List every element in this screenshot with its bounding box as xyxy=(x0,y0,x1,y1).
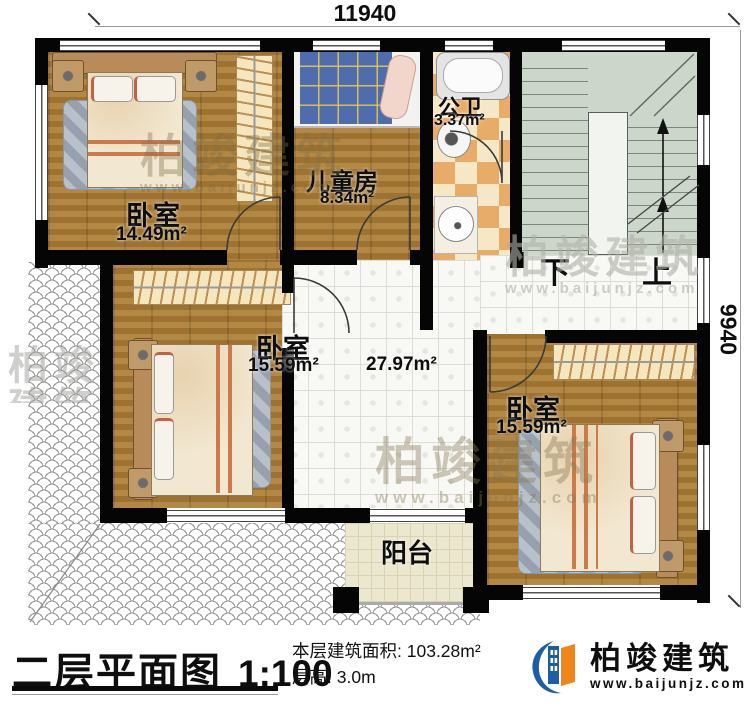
stairs-down-label: 下 xyxy=(540,248,570,292)
window xyxy=(562,40,665,51)
window xyxy=(697,445,710,530)
dimension-tick xyxy=(728,13,741,26)
title-underline-thin xyxy=(12,694,278,695)
area-label-bedroom-bottom-right: 15.59m² xyxy=(496,417,567,439)
floor-height-label: 层高: xyxy=(292,667,332,687)
window xyxy=(60,40,260,51)
area-label-bedroom-mid-left: 15.59m² xyxy=(248,355,319,377)
bed-blanket-stripes xyxy=(216,345,240,493)
bathtub-basin xyxy=(443,58,503,93)
floor-hall xyxy=(282,260,480,508)
pillow xyxy=(134,76,176,102)
wardrobe xyxy=(133,270,291,305)
stair-flight-right xyxy=(628,115,697,255)
floor-height-value: 3.0m xyxy=(337,667,376,687)
sink xyxy=(438,206,474,242)
wall-segment xyxy=(285,508,370,523)
nightstand xyxy=(52,60,84,92)
wall-segment xyxy=(35,250,227,265)
pillow xyxy=(154,418,174,480)
balcony-pier xyxy=(463,587,489,613)
wall-segment xyxy=(420,38,433,330)
brand-name: 柏竣建筑 xyxy=(590,643,747,676)
wall-segment xyxy=(282,265,294,293)
dimension-height-label: 9940 xyxy=(715,292,742,368)
wardrobe xyxy=(553,344,695,380)
wall-segment xyxy=(282,38,294,250)
wardrobe xyxy=(236,55,273,202)
room-label-balcony: 阳台 xyxy=(381,533,433,570)
wall-segment xyxy=(473,330,487,585)
stair-flight-left xyxy=(522,56,588,255)
floor-info: 本层建筑面积: 103.28m² 层高: 3.0m xyxy=(292,638,481,691)
wall-segment xyxy=(100,250,113,508)
brand-text: 柏竣建筑 www.baijunjz.com xyxy=(590,643,747,691)
brand-logo: 柏竣建筑 www.baijunjz.com xyxy=(528,638,747,696)
wall-segment xyxy=(280,250,357,265)
window xyxy=(523,587,660,599)
bed-blanket-stripes xyxy=(572,425,598,569)
stair-void xyxy=(588,112,628,255)
brand-logo-icon xyxy=(528,638,582,696)
bed-blanket-stripes xyxy=(88,140,180,164)
window xyxy=(697,258,710,323)
title-underline xyxy=(12,686,278,691)
balcony-rail xyxy=(345,602,480,605)
pillow xyxy=(91,76,133,102)
floor-area-label: 本层建筑面积: xyxy=(292,641,402,661)
kids-bed-plaid-blanket xyxy=(300,52,392,124)
wall-segment xyxy=(545,330,697,343)
balcony-sliding-door xyxy=(370,509,465,522)
window xyxy=(697,115,710,165)
pillow xyxy=(154,352,174,414)
balcony-pier xyxy=(333,587,359,613)
nightstand xyxy=(185,60,217,92)
dimension-width-label: 11940 xyxy=(250,0,480,27)
wall-segment xyxy=(510,252,524,268)
window xyxy=(313,40,380,51)
wall-segment xyxy=(510,38,522,252)
area-label-hall: 27.97m² xyxy=(366,354,437,376)
floor-area-value: 103.28m² xyxy=(407,641,481,661)
floor-area-line: 本层建筑面积: 103.28m² xyxy=(292,638,481,664)
brand-url: www.baijunjz.com xyxy=(590,676,747,691)
area-label-kids-room: 8.34m² xyxy=(320,188,374,208)
dimension-tick xyxy=(88,13,101,26)
area-label-bedroom-top-left: 14.49m² xyxy=(116,224,187,246)
window xyxy=(445,40,493,51)
wall-segment xyxy=(100,508,167,523)
pillow xyxy=(630,432,656,490)
window xyxy=(35,85,48,220)
window xyxy=(167,510,285,522)
area-label-bathroom: 3.37m² xyxy=(434,112,485,130)
wall-segment xyxy=(660,585,710,600)
stairs-up-label: 上 xyxy=(642,248,672,292)
pillow xyxy=(630,496,656,554)
dimension-tick xyxy=(728,595,741,608)
floor-height-line: 层高: 3.0m xyxy=(292,664,481,690)
floorplan-canvas: 11940 9940 xyxy=(0,0,750,706)
